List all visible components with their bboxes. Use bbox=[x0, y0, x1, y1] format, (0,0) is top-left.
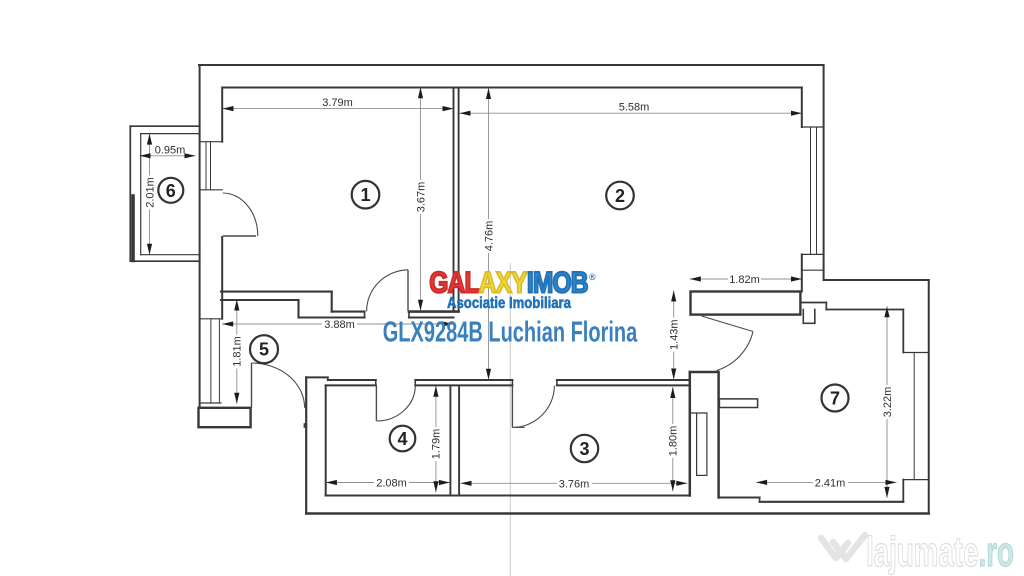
svg-text:7: 7 bbox=[830, 389, 840, 409]
svg-text:4.76m: 4.76m bbox=[483, 221, 495, 252]
svg-text:1.43m: 1.43m bbox=[669, 319, 681, 350]
svg-text:6: 6 bbox=[166, 181, 176, 201]
svg-text:3.67m: 3.67m bbox=[415, 182, 427, 213]
svg-text:1.79m: 1.79m bbox=[431, 429, 443, 460]
svg-text:3.76m: 3.76m bbox=[559, 478, 590, 490]
svg-text:1: 1 bbox=[360, 185, 370, 205]
svg-text:1.80m: 1.80m bbox=[668, 426, 680, 457]
svg-text:3.88m: 3.88m bbox=[324, 319, 355, 331]
svg-text:Asociatie Imobiliara: Asociatie Imobiliara bbox=[447, 295, 572, 312]
svg-text:lajumate.ro: lajumate.ro bbox=[866, 528, 1014, 575]
svg-text:2.41m: 2.41m bbox=[815, 477, 846, 489]
svg-text:®: ® bbox=[589, 272, 596, 282]
svg-text:5.58m: 5.58m bbox=[619, 102, 650, 114]
svg-text:5: 5 bbox=[259, 340, 269, 360]
svg-text:1.82m: 1.82m bbox=[729, 274, 760, 286]
svg-text:4: 4 bbox=[397, 429, 407, 449]
svg-text:2.01m: 2.01m bbox=[144, 177, 156, 208]
svg-text:1.81m: 1.81m bbox=[232, 336, 244, 367]
svg-text:0.95m: 0.95m bbox=[155, 145, 186, 157]
svg-text:2: 2 bbox=[615, 186, 625, 206]
svg-text:3.79m: 3.79m bbox=[322, 97, 353, 109]
svg-text:GLX9284B Luchian Florina: GLX9284B Luchian Florina bbox=[383, 316, 638, 349]
svg-text:3.22m: 3.22m bbox=[882, 387, 894, 418]
svg-text:3: 3 bbox=[579, 439, 589, 459]
svg-text:2.08m: 2.08m bbox=[376, 478, 407, 490]
